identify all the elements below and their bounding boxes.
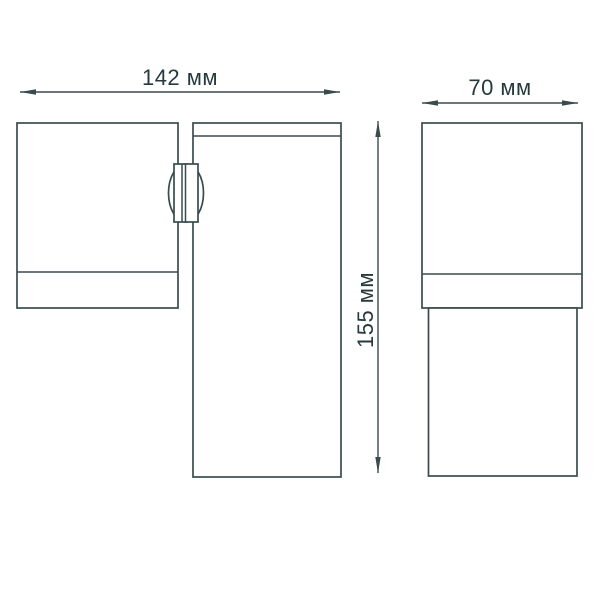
- lamp-body-side: [422, 123, 582, 308]
- side-width-dimension: 70 мм: [422, 75, 578, 103]
- wall-mount-plate: [17, 123, 178, 308]
- front-view: [17, 123, 341, 477]
- swivel-hinge: [169, 164, 204, 222]
- dimension-drawing: 142 мм 70 мм 155 мм: [0, 0, 600, 600]
- front-width-dimension: 142 мм: [20, 65, 340, 92]
- side-width-label: 70 мм: [468, 75, 531, 100]
- height-dimension: 155 мм: [353, 121, 378, 473]
- side-view: [422, 123, 582, 476]
- height-label: 155 мм: [353, 272, 378, 348]
- dimension-drawing-canvas: 142 мм 70 мм 155 мм: [0, 0, 600, 600]
- side-lower-section: [429, 308, 578, 476]
- lamp-body-front: [193, 123, 341, 477]
- front-width-label: 142 мм: [142, 65, 218, 90]
